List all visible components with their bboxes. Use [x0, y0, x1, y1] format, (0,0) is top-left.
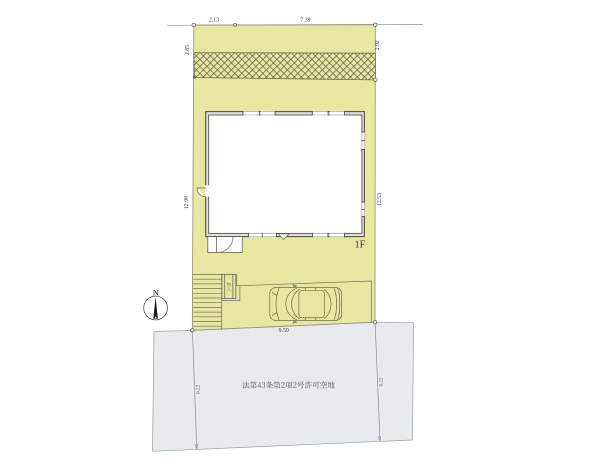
svg-text:1F: 1F — [354, 239, 365, 250]
svg-text:2.13: 2.13 — [209, 18, 219, 24]
svg-text:7.39: 7.39 — [300, 18, 310, 24]
svg-text:12.53: 12.53 — [377, 193, 383, 206]
svg-text:6.22: 6.22 — [196, 384, 202, 393]
svg-text:12.98: 12.98 — [184, 196, 190, 209]
svg-text:2.85: 2.85 — [185, 45, 191, 55]
svg-text:2.92: 2.92 — [375, 40, 381, 50]
svg-text:6.22: 6.22 — [378, 377, 384, 386]
svg-text:9.59: 9.59 — [279, 328, 289, 334]
